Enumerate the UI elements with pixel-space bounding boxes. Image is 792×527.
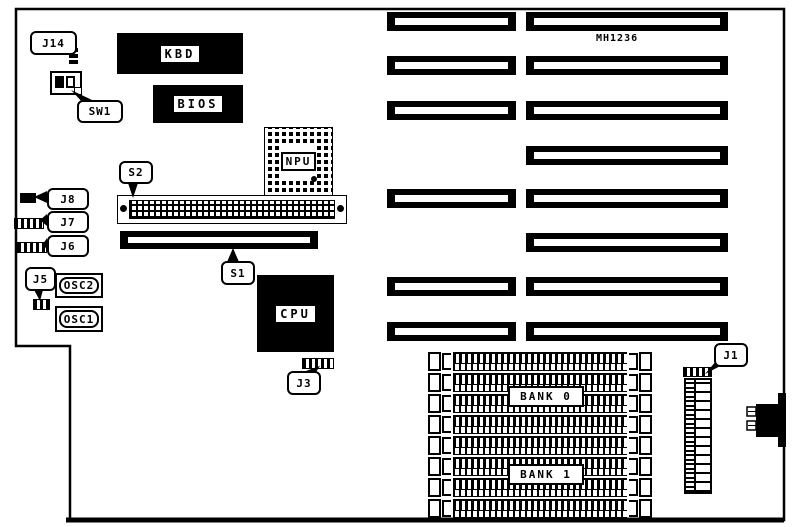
callout-j7: J7: [47, 211, 89, 233]
j5-connector: [33, 299, 50, 310]
isa-slot-short: [387, 56, 516, 75]
callout-j5: J5: [25, 267, 56, 291]
simm-clip: [428, 478, 441, 497]
simm-clip: [639, 478, 652, 497]
simm-clip-hook: [629, 353, 638, 370]
isa-slot-short: [387, 12, 516, 31]
simm-clip: [639, 457, 652, 476]
simm-clip: [428, 415, 441, 434]
s2-left-pin: [120, 205, 127, 212]
board-outline: [0, 0, 792, 527]
simm-clip-hook: [442, 479, 451, 496]
j7-connector: [14, 218, 44, 229]
simm-clip: [428, 352, 441, 371]
osc1-oscillator: OSC1: [55, 306, 103, 332]
s2-right-pin: [337, 205, 344, 212]
simm-clip: [639, 352, 652, 371]
callout-s2: S2: [119, 161, 153, 184]
power-connector: [684, 378, 712, 494]
npu-socket: NPU: [264, 127, 333, 196]
npu-pin1-dot: [311, 176, 317, 182]
simm-pins: [453, 436, 627, 455]
j3-connector: [302, 358, 334, 369]
sw1-dip-switch: [50, 71, 82, 95]
power-connector-slots: [696, 380, 710, 492]
simm-clip: [428, 499, 441, 518]
simm-clip-hook: [442, 437, 451, 454]
isa-slot-short: [387, 322, 516, 341]
simm-clip-hook: [629, 374, 638, 391]
simm-clip: [428, 394, 441, 413]
simm-clip: [639, 394, 652, 413]
simm-pins: [453, 499, 627, 518]
keyboard-controller-chip: KBD: [117, 33, 243, 74]
simm-clip-hook: [629, 458, 638, 475]
simm-clip-hook: [629, 437, 638, 454]
s2-pin-grid: [129, 200, 335, 219]
isa-slot-short: [387, 101, 516, 120]
s2-connector: [117, 195, 347, 224]
simm-clip: [428, 457, 441, 476]
cpu-chip-label: CPU: [276, 306, 315, 322]
callout-sw1: SW1: [77, 100, 123, 123]
simm-socket: [428, 436, 652, 455]
kbd-chip-label: KBD: [161, 46, 200, 62]
osc2-label: OSC2: [59, 277, 99, 294]
callout-j1: J1: [714, 343, 748, 367]
simm-clip: [639, 499, 652, 518]
callout-j6: J6: [47, 235, 89, 257]
simm-clip: [428, 436, 441, 455]
s1-slot: [120, 231, 318, 249]
simm-pins: [453, 415, 627, 434]
isa-slot-long: [526, 322, 728, 341]
cpu-chip: CPU: [257, 275, 334, 352]
npu-label: NPU: [281, 152, 317, 171]
j8-connector: [20, 193, 36, 203]
isa-slot-long: [526, 277, 728, 296]
isa-slot-long: [526, 233, 728, 252]
simm-socket: [428, 499, 652, 518]
isa-slot-long: [526, 12, 728, 31]
simm-clip-hook: [442, 374, 451, 391]
board-model-label: MH1236: [596, 33, 638, 44]
sw1-switch-on: [55, 76, 64, 88]
j6-connector: [17, 242, 47, 253]
simm-clip: [639, 415, 652, 434]
bios-chip-label: BIOS: [174, 96, 223, 112]
osc2-oscillator: OSC2: [55, 273, 103, 298]
isa-slot-long: [526, 146, 728, 165]
isa-slot-long: [526, 189, 728, 208]
j1-connector: [683, 367, 712, 377]
simm-clip-hook: [442, 395, 451, 412]
simm-clip-hook: [629, 395, 638, 412]
simm-clip-hook: [442, 458, 451, 475]
callout-j8: J8: [47, 188, 89, 210]
simm-pins: [453, 352, 627, 371]
simm-clip-hook: [629, 479, 638, 496]
npu-socket-center: NPU: [280, 143, 317, 180]
callout-s1: S1: [221, 261, 255, 285]
simm-clip: [639, 373, 652, 392]
motherboard-diagram: KBD BIOS CPU NPU OSC2 OSC1: [0, 0, 792, 527]
isa-slot-short: [387, 189, 516, 208]
simm-clip-hook: [629, 416, 638, 433]
bios-chip: BIOS: [153, 85, 243, 123]
isa-slot-long: [526, 101, 728, 120]
osc1-label: OSC1: [59, 310, 99, 328]
simm-clip-hook: [629, 500, 638, 517]
simm-socket: [428, 352, 652, 371]
bank1-label: BANK 1: [508, 464, 584, 485]
simm-clip: [428, 373, 441, 392]
simm-clip-hook: [442, 353, 451, 370]
power-connector-pins: [686, 380, 696, 492]
bank0-label: BANK 0: [508, 386, 584, 407]
callout-j14: J14: [30, 31, 77, 55]
callout-j3: J3: [287, 371, 321, 395]
isa-slot-short: [387, 277, 516, 296]
simm-clip-hook: [442, 416, 451, 433]
sw1-pad: [74, 87, 82, 95]
simm-socket: [428, 415, 652, 434]
isa-slot-long: [526, 56, 728, 75]
simm-clip-hook: [442, 500, 451, 517]
simm-clip: [639, 436, 652, 455]
